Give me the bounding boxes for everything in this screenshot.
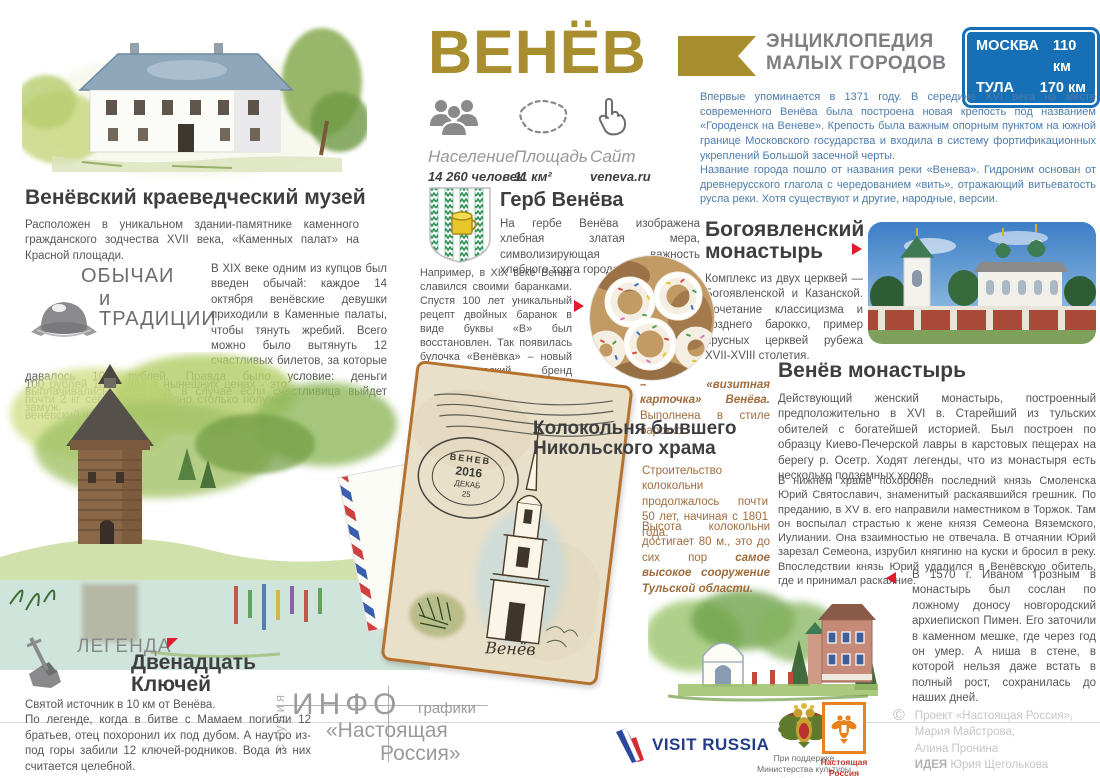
bell-tower-caption-bold: – «визитная карточка» Венёва. (640, 379, 770, 406)
distance-city: МОСКВА (976, 36, 1039, 78)
postmark-day: 25 (461, 489, 471, 499)
monastery-gate-watercolor-illustration (648, 584, 886, 706)
hat-icon (29, 288, 99, 340)
credit-line-1: Проект «Настоящая Россия», (915, 708, 1073, 724)
stat-label: Сайт (590, 147, 651, 167)
history-paragraph-1: Впервые упоминается в 1371 году. В серед… (700, 90, 1096, 163)
stamp-label-1: Настоящая (818, 757, 870, 768)
red-arrow-right-icon (852, 243, 862, 255)
sword-in-stone-icon (27, 636, 71, 688)
bogoyavlensky-monastery-photo (868, 222, 1096, 344)
stat-value: veneva.ru (590, 169, 651, 184)
bogoyavlensky-title-1: Богоявленский (705, 219, 864, 241)
museum-watercolor-illustration (22, 10, 367, 186)
history-paragraph-2: Название города пошло от названия реки «… (700, 163, 1096, 207)
stats-row: Население 14 260 человек Площадь 11 км² … (428, 96, 698, 182)
stat-site: Сайт veneva.ru (590, 96, 651, 184)
studio-logo: ИНФО графики «Настоящая Россия» (292, 688, 502, 772)
customs-label-1: ОБЫЧАИ (81, 266, 174, 286)
copyright-symbol: © (893, 708, 905, 773)
series-line-1: ЭНЦИКЛОПЕДИЯ (766, 31, 946, 53)
customs-badge: ОБЫЧАИ и ТРАДИЦИИ (25, 262, 211, 364)
stamp-icon (822, 702, 866, 754)
bell-tower-title-2: Никольского храма (533, 439, 736, 459)
studio-logo-grafiki: графики (418, 700, 476, 717)
legend-line-1: Святой источник в 10 км от Венёва. (25, 698, 311, 713)
distance-row-moscow: МОСКВА 110 км (976, 36, 1086, 78)
stat-label: Население (428, 147, 524, 167)
visit-russia-mark-icon (612, 726, 648, 764)
credit-line-2: Мария Майстрова, (915, 724, 1073, 740)
studio-logo-line-2: «Настоящая (326, 719, 448, 743)
museum-text: Расположен в уникальном здании-памятнике… (25, 218, 359, 264)
banner-flag-icon (678, 33, 756, 79)
venev-monastery-paragraph-3: В 1570 г. Иваном Грозным в монастырь был… (912, 568, 1096, 707)
postcard-handwriting: Венёв (484, 638, 536, 659)
studio-logo-line-3: Россия» (380, 742, 461, 766)
city-title: ВЕНЁВ (428, 22, 647, 83)
credit-idea-name: Юрия Щеголькова (950, 759, 1048, 771)
postcard-illustration: ВЕНЕВ 2016 ДЕКАБ 25 Вен (380, 360, 633, 686)
stamp-label-2: Россия (818, 768, 870, 778)
bogoyavlensky-text: Комплекс из двух церквей — Богоявленской… (705, 272, 863, 364)
credit-line-3: Алина Пронина (915, 741, 1073, 757)
series-line-2: МАЛЫХ ГОРОДОВ (766, 53, 946, 75)
bell-tower-title-1: Колокольня бывшего (533, 419, 736, 439)
legend-title-1: Двенадцать (131, 652, 256, 674)
bogoyavlensky-title-2: монастырь (705, 241, 864, 263)
infographic-poster: Венёвский краеведческий музей Расположен… (0, 0, 1100, 778)
baranki-photo (590, 256, 714, 380)
stat-value: 11 км² (514, 169, 588, 184)
museum-title: Венёвский краеведческий музей (25, 187, 366, 209)
credits: © Проект «Настоящая Россия», Мария Майст… (893, 708, 1073, 773)
coat-title: Герб Венёва (500, 190, 624, 211)
stat-area: Площадь 11 км² (514, 96, 588, 184)
coat-of-arms-icon (428, 186, 492, 264)
red-arrow-left-icon (886, 572, 896, 584)
stat-population: Население 14 260 человек (428, 96, 524, 184)
stat-label: Площадь (514, 147, 588, 167)
postmark-month: ДЕКАБ (454, 478, 481, 490)
venev-monastery-paragraph-1: Действующий женский монастырь, построенн… (778, 392, 1096, 484)
red-flag-icon (167, 638, 178, 649)
nastoyashchaya-rossiya-logo: Настоящая Россия (818, 702, 870, 778)
legend-text: По легенде, когда в битве с Мамаем погиб… (25, 714, 311, 772)
credit-idea-label: ИДЕЯ (915, 759, 947, 771)
territory-outline-icon (514, 96, 572, 136)
customs-label-2: и ТРАДИЦИИ (99, 289, 217, 329)
legend-title-2: Ключей (131, 674, 256, 696)
hand-cursor-icon (590, 96, 630, 136)
venev-monastery-title: Венёв монастырь (778, 360, 966, 382)
stat-value: 14 260 человек (428, 169, 524, 184)
red-arrow-right-icon (574, 300, 584, 312)
distance-value: 110 км (1053, 36, 1086, 78)
people-icon (428, 96, 480, 136)
